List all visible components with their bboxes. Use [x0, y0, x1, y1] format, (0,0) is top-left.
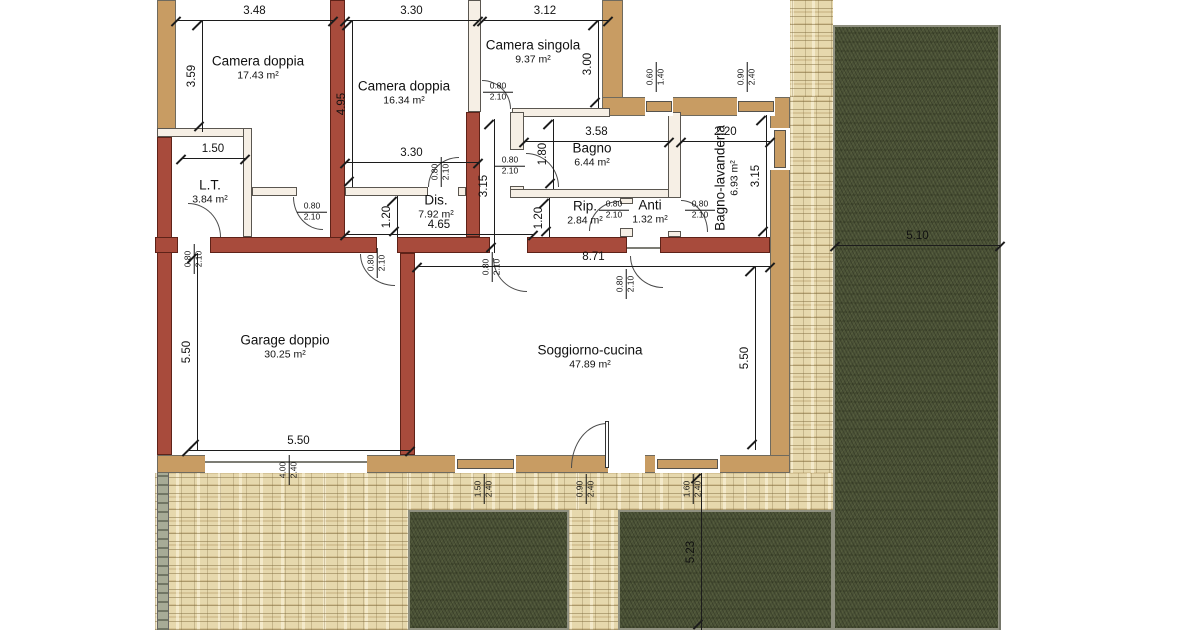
opening-height: 2.10	[495, 166, 525, 177]
opening-height: 2.10	[377, 248, 388, 278]
opening-height: 2.10	[194, 244, 205, 274]
door-size-label-nook: 0.802.10	[297, 202, 327, 223]
room-area: 3.84 m²	[192, 194, 228, 207]
wall-anti-lavanderia-divider-a	[668, 112, 681, 198]
window-north-090-sill	[738, 101, 774, 112]
dim-cam1-depth: 3.59	[202, 20, 203, 132]
grass-south-lawn-left	[408, 510, 569, 630]
room-area: 16.34 m²	[358, 95, 450, 108]
dim-label: 8.71	[582, 251, 604, 263]
opening-width: 0.60	[646, 62, 656, 92]
site-boundary-line	[999, 25, 1001, 630]
dim-lt-width: 1.50	[181, 158, 245, 159]
window-south-160-sill	[657, 459, 718, 469]
door-size-label-rip: 0.802.10	[599, 200, 629, 221]
room-name: Garage doppio	[240, 333, 329, 349]
room-area: 47.89 m²	[537, 359, 642, 372]
grass-south-lawn-right	[618, 510, 833, 630]
dim-label: 1.80	[537, 143, 549, 165]
dim-label: 1.20	[381, 205, 393, 227]
door-size-label-singola: 0.802.10	[483, 82, 513, 103]
wall-exterior-west-upper	[157, 0, 176, 137]
room-name: Bagno-lavanderia	[713, 125, 729, 231]
dim-label: 3.30	[400, 147, 422, 159]
wall-spine-d	[527, 237, 627, 253]
room-label-rip: Rip.2.84 m²	[567, 199, 603, 228]
room-name: Bagno	[572, 141, 611, 157]
dim-soggiorno-width: 8.71	[417, 266, 770, 267]
room-name: L.T.	[192, 178, 228, 194]
dim-singola-depth: 3.00	[598, 20, 599, 108]
wall-spine-a	[155, 237, 178, 253]
room-name: Camera doppia	[212, 54, 304, 70]
opening-height: 1.40	[656, 62, 667, 92]
room-name: Rip.	[567, 199, 603, 215]
wall-cam2-south-a	[345, 187, 428, 196]
opening-height: 2.10	[483, 92, 513, 103]
dim-garage-depth: 5.50	[197, 253, 198, 450]
room-label-bagno: Bagno6.44 m²	[572, 141, 611, 170]
room-area: 17.43 m²	[212, 70, 304, 83]
wall-nook-north	[252, 187, 297, 196]
door-size-label-lt: 0.802.10	[184, 244, 205, 274]
dim-label: 3.12	[534, 5, 556, 17]
wall-spine-c	[397, 237, 490, 253]
room-area: 7.92 m²	[418, 209, 454, 222]
room-area: 1.32 m²	[632, 214, 668, 227]
dim-niche-depth: 1.20	[397, 196, 398, 237]
window-size-label-south-160: 1.602.40	[683, 474, 704, 504]
wall-lt-north	[157, 128, 252, 137]
dim-label: 3.58	[585, 126, 607, 138]
opening-width: 0.80	[367, 248, 377, 278]
window-east-sill	[774, 130, 786, 168]
room-label-soggiorno: Soggiorno-cucina47.89 m²	[537, 343, 642, 372]
fence-strip-west	[157, 473, 169, 630]
opening-height: 2.10	[599, 210, 629, 221]
room-label-garage: Garage doppio30.25 m²	[240, 333, 329, 362]
wall-lt-east	[243, 128, 252, 237]
opening-height: 2.40	[289, 455, 300, 485]
dim-singola-width: 3.12	[482, 20, 608, 21]
stone-driveway	[155, 473, 408, 630]
stone-path-east	[790, 97, 833, 510]
wall-spine-b	[210, 237, 377, 253]
window-size-label-north-small: 0.601.40	[646, 62, 667, 92]
opening-width: 0.90	[576, 474, 586, 504]
opening-width: 0.90	[737, 62, 747, 92]
wall-bedrooms-divider	[330, 0, 345, 240]
dim-rip-depth: 1.20	[549, 198, 550, 237]
room-name: Camera singola	[486, 38, 581, 54]
door-size-label-cam2: 0.802.10	[431, 157, 452, 187]
opening-height: 2.40	[747, 62, 758, 92]
dim-cam2-width: 3.30	[345, 20, 478, 21]
room-area: 6.93 m²	[729, 125, 742, 231]
dim-label: 4.95	[336, 92, 348, 114]
wall-anti-lavanderia-divider-b	[668, 231, 681, 237]
door-size-label-lavanderia: 0.802.10	[685, 200, 715, 221]
dim-label: 5.50	[181, 340, 193, 362]
room-name: Camera doppia	[358, 79, 450, 95]
dim-label: 3.15	[478, 175, 490, 197]
room-name: Anti	[632, 198, 668, 214]
window-size-label-south-150: 1.502.40	[474, 474, 495, 504]
floor-plan-canvas: 3.48 3.30 3.12 1.50 3.30 3.58 2.20 4.65 …	[0, 0, 1200, 630]
opening-height: 2.10	[441, 157, 452, 187]
garage-door-size-label: 4.002.40	[279, 455, 300, 485]
dim-garden-east: 5.10	[835, 245, 1000, 246]
opening-height: 2.40	[693, 474, 704, 504]
window-north-060-sill	[646, 101, 672, 112]
dim-garage-width: 5.50	[187, 450, 410, 451]
stone-walkway-south	[569, 510, 618, 630]
room-area: 2.84 m²	[567, 215, 603, 228]
opening-width: 0.80	[297, 202, 327, 212]
wall-singola-south	[512, 108, 610, 117]
window-size-label-north-090: 0.902.40	[737, 62, 758, 92]
grass-east-lawn	[833, 25, 1000, 630]
room-area: 6.44 m²	[572, 157, 611, 170]
threshold-anti-soggiorno	[627, 247, 660, 249]
dim-label: 5.50	[287, 435, 309, 447]
dim-label: 3.00	[582, 53, 594, 75]
dim-label: 1.50	[202, 143, 224, 155]
room-name: Dis.	[418, 193, 454, 209]
opening-width: 1.50	[474, 474, 484, 504]
wall-spine-e	[660, 237, 770, 253]
door-size-label-bagno: 0.802.10	[495, 156, 525, 177]
room-area: 9.37 m²	[486, 54, 581, 67]
dim-corridor-depth: 3.15	[494, 119, 495, 253]
window-south-150-sill	[457, 459, 514, 469]
opening-width: 0.80	[599, 200, 629, 210]
door-size-label-anti-soggiorno: 0.802.10	[616, 269, 637, 299]
dim-label: 5.50	[739, 347, 751, 369]
opening-height: 2.10	[297, 212, 327, 223]
opening-height: 2.10	[685, 210, 715, 221]
room-label-camera-doppia-1: Camera doppia17.43 m²	[212, 54, 304, 83]
opening-width: 0.80	[482, 252, 492, 282]
opening-height: 2.10	[492, 252, 503, 282]
dim-soggiorno-depth: 5.50	[755, 266, 756, 450]
room-label-bagno-lavanderia: Bagno-lavanderia6.93 m²	[713, 125, 742, 231]
dim-label: 5.23	[685, 540, 697, 562]
opening-width: 0.80	[616, 269, 626, 299]
dim-label: 1.20	[533, 206, 545, 228]
opening-height: 2.40	[484, 474, 495, 504]
opening-height: 2.40	[586, 474, 597, 504]
door-size-label-garage: 0.802.10	[367, 248, 388, 278]
room-label-camera-doppia-2: Camera doppia16.34 m²	[358, 79, 450, 108]
wall-rip-anti-divider-b	[620, 228, 633, 237]
dim-label: 5.10	[906, 230, 928, 242]
opening-width: 0.80	[431, 157, 441, 187]
entry-door-leaf	[605, 421, 609, 468]
room-label-camera-singola: Camera singola9.37 m²	[486, 38, 581, 67]
room-name: Soggiorno-cucina	[537, 343, 642, 359]
opening-width: 1.60	[683, 474, 693, 504]
dim-cam2-width-bottom: 3.30	[345, 162, 478, 163]
opening-width: 0.80	[685, 200, 715, 210]
dim-dis-length: 4.65	[345, 234, 533, 235]
opening-width: 0.80	[495, 156, 525, 166]
dim-cam2-depth: 4.95	[352, 20, 353, 187]
wall-garage-soggiorno-divider	[400, 253, 415, 455]
entry-door-opening	[608, 455, 645, 473]
room-label-anti: Anti1.32 m²	[632, 198, 668, 227]
room-area: 30.25 m²	[240, 349, 329, 362]
dim-label: 3.15	[750, 165, 762, 187]
room-label-dis: Dis.7.92 m²	[418, 193, 454, 222]
dim-lavanderia-depth: 3.15	[766, 115, 767, 237]
dim-label: 3.30	[400, 5, 422, 17]
entry-door-size-label: 0.902.40	[576, 474, 597, 504]
opening-width: 0.80	[483, 82, 513, 92]
dim-label: 3.59	[186, 65, 198, 87]
dim-bagno-depth: 1.80	[553, 119, 554, 189]
wall-west-lower	[157, 137, 172, 455]
opening-width: 4.00	[279, 455, 289, 485]
door-size-label-soggiorno-north: 0.802.10	[482, 252, 503, 282]
dim-label: 3.48	[243, 5, 265, 17]
wall-singola-west	[468, 0, 481, 112]
wall-cam2-south-b	[458, 187, 466, 196]
room-label-lt: L.T.3.84 m²	[192, 178, 228, 207]
opening-width: 0.80	[184, 244, 194, 274]
opening-height: 2.10	[626, 269, 637, 299]
